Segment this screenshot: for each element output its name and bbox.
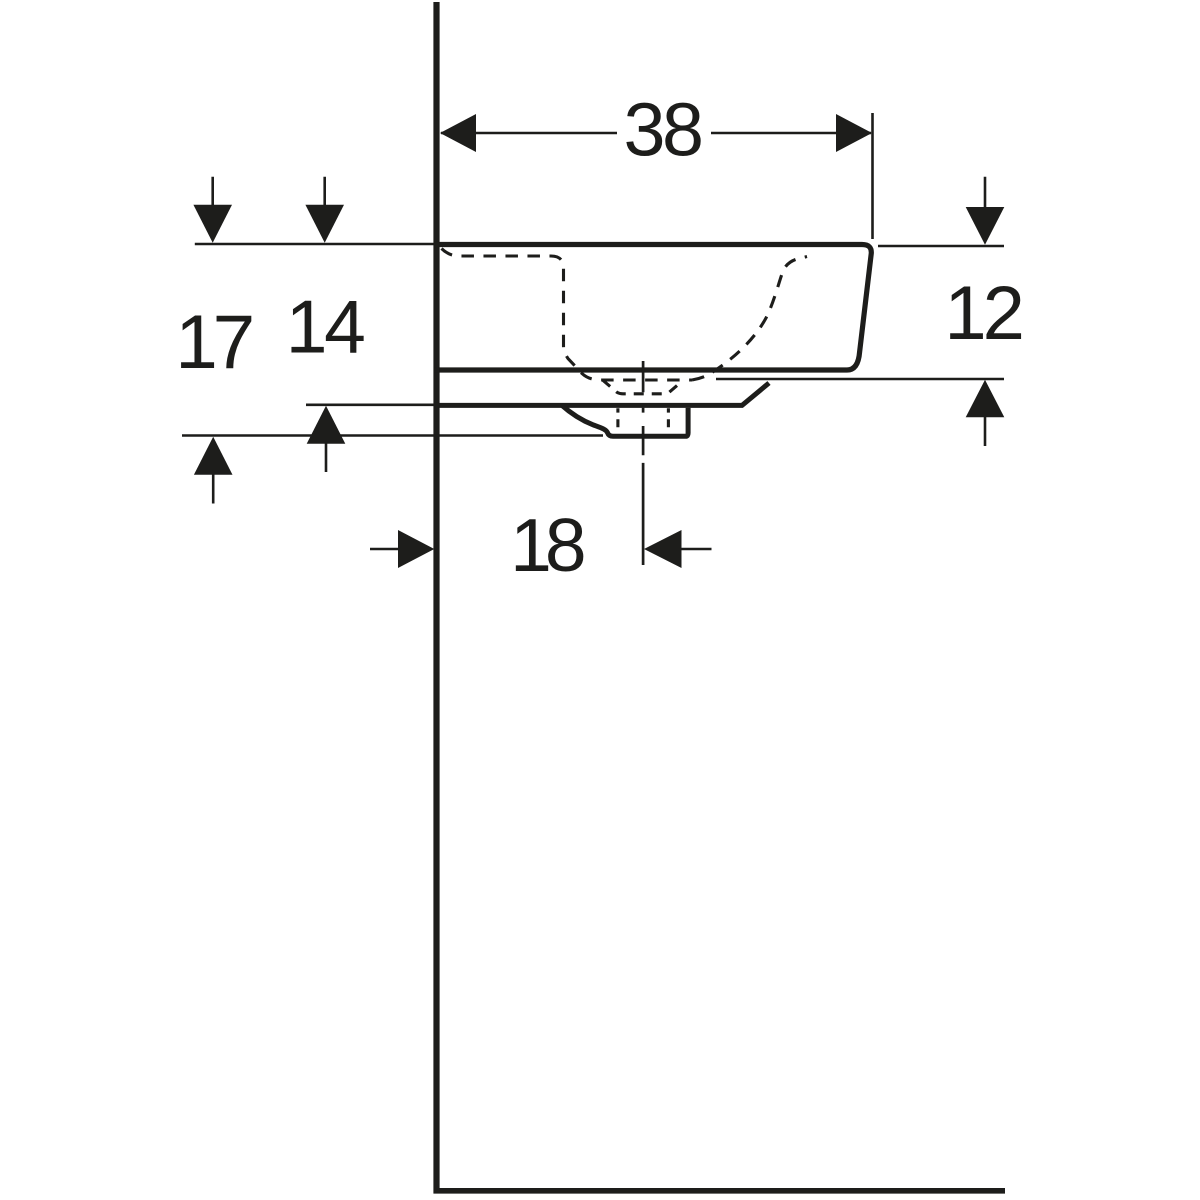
svg-text:14: 14: [286, 284, 366, 368]
svg-text:17: 17: [175, 300, 255, 385]
svg-text:12: 12: [944, 271, 1025, 356]
svg-text:38: 38: [624, 88, 705, 172]
svg-text:18: 18: [510, 503, 587, 587]
